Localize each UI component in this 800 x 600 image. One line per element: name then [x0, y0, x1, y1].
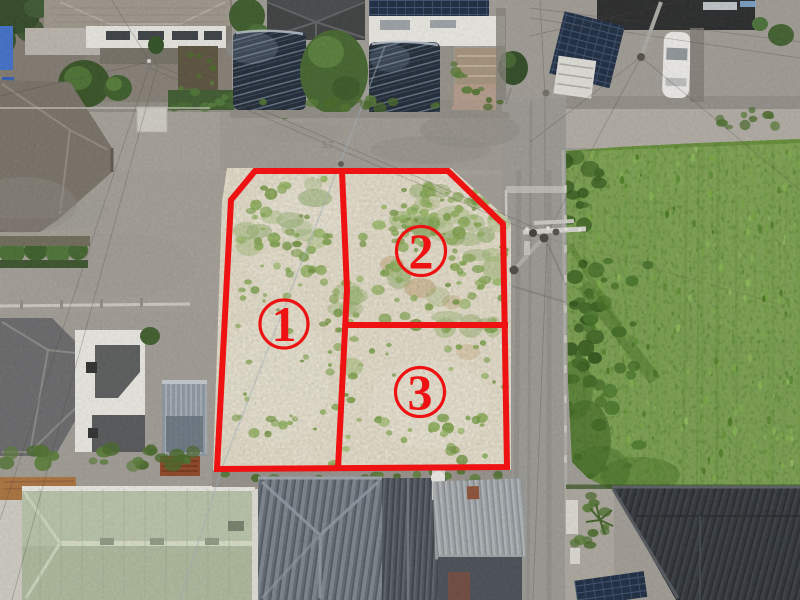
svg-text:2: 2 — [409, 223, 434, 279]
svg-text:1: 1 — [272, 296, 297, 352]
svg-text:3: 3 — [408, 364, 433, 420]
